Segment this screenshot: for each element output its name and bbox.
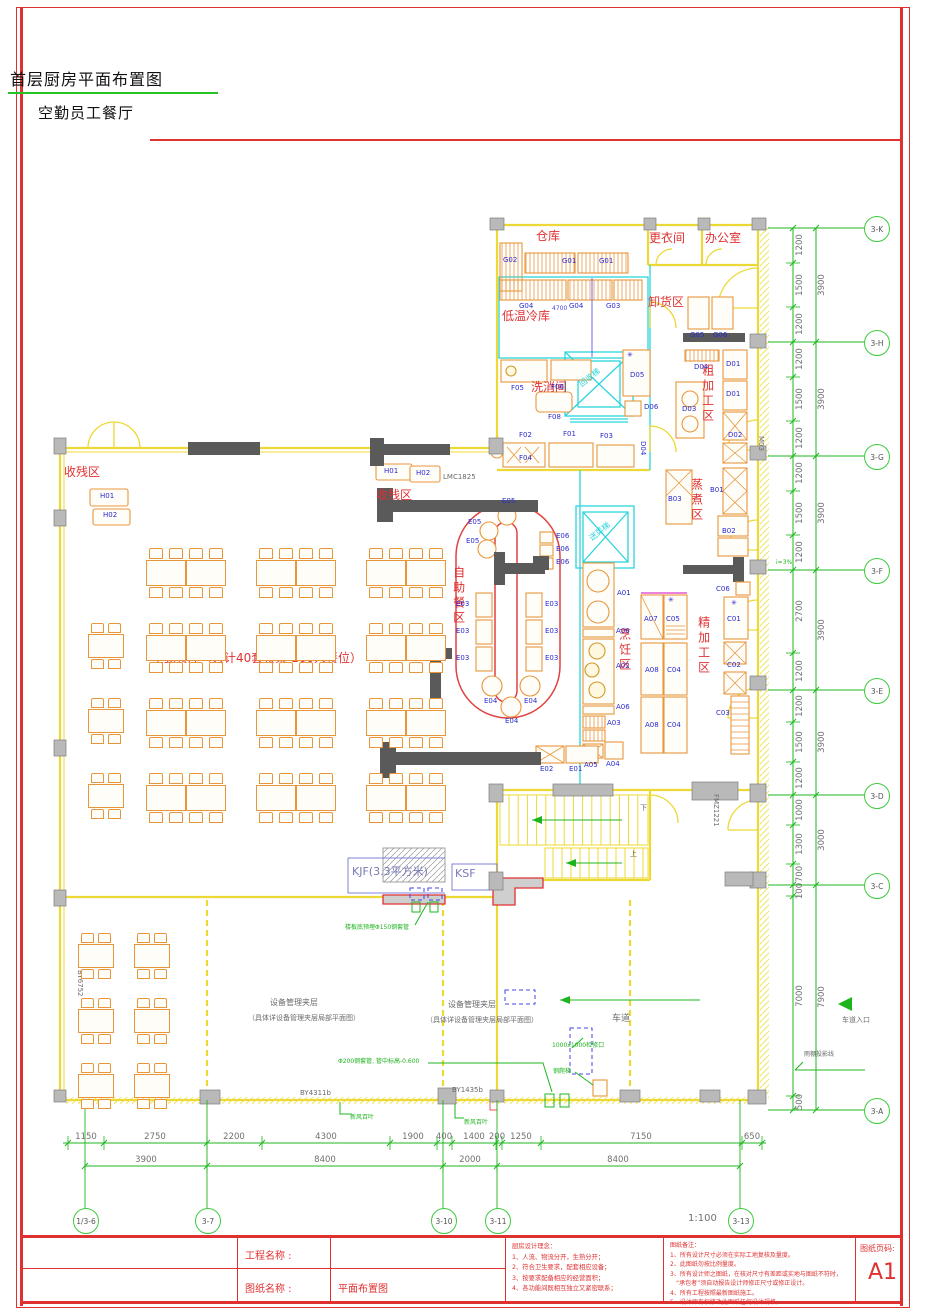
dining-chair — [189, 623, 203, 634]
dining-chair — [389, 737, 403, 748]
dining-chair — [98, 998, 111, 1008]
dining-chair — [209, 812, 223, 823]
dining-chair — [189, 587, 203, 598]
design-philosophy-title: 厨房设计理念： — [512, 1242, 660, 1253]
dining-chair — [409, 587, 423, 598]
dining-chair — [137, 933, 150, 943]
annotation-text: 新风百叶 — [350, 1115, 374, 1121]
dim-text-bottom: 650 — [744, 1133, 760, 1142]
dining-chair — [81, 1099, 94, 1109]
dim-text-bottom: 200 — [489, 1133, 505, 1142]
dim-text-bottom: 4300 — [315, 1133, 337, 1142]
dining-chair — [189, 662, 203, 673]
dining-chair — [409, 737, 423, 748]
dining-table — [406, 635, 446, 661]
dim-text-right: 700 — [796, 866, 805, 882]
dim-text-right: 1200 — [796, 348, 805, 370]
notes-line: 2、此图纸勿按比例量度。 — [670, 1260, 852, 1270]
dim-text-right-total: 3900 — [818, 274, 827, 296]
equipment-code: E03 — [456, 628, 469, 635]
equipment-code: F05 — [511, 385, 524, 392]
equipment-code: D06 — [644, 404, 658, 411]
scale-note: 1:100 — [688, 1214, 717, 1224]
dining-chair — [169, 812, 183, 823]
dining-chair — [98, 969, 111, 979]
dining-chair — [137, 1063, 150, 1073]
annotation-text: BY1435b — [452, 1087, 483, 1094]
dining-chair — [299, 773, 313, 784]
dining-chair — [149, 737, 163, 748]
dining-chair — [319, 587, 333, 598]
dim-text-right: 1200 — [796, 541, 805, 563]
zone-label: 收残区 — [64, 466, 100, 479]
annotation-text: （具体详设备管理夹层局部平面图） — [248, 1015, 360, 1022]
dining-table — [406, 785, 446, 811]
dining-chair — [209, 587, 223, 598]
dining-chair — [81, 1063, 94, 1073]
dim-text-right: 1300 — [796, 833, 805, 855]
dining-table — [256, 710, 296, 736]
dining-table — [146, 635, 186, 661]
dim-text-right-total: 3900 — [818, 619, 827, 641]
dining-table — [256, 785, 296, 811]
dining-chair — [189, 548, 203, 559]
dining-chair — [209, 737, 223, 748]
dining-chair — [369, 662, 383, 673]
dining-chair — [279, 623, 293, 634]
dining-chair — [259, 587, 273, 598]
dining-chair — [429, 662, 443, 673]
plan-overlay: 仓库更衣间办公室卸货区低温冷库洗消间收残区收残区自助餐区烹饪区蒸煮区精加工区粗加… — [0, 0, 930, 1315]
dining-table — [366, 785, 406, 811]
annotation-text: 送菜梯 — [588, 521, 612, 542]
equipment-code: A03 — [607, 720, 621, 727]
dining-chair — [259, 623, 273, 634]
dining-table — [146, 785, 186, 811]
equipment-code: G01 — [562, 258, 576, 265]
equipment-code: C04 — [667, 667, 681, 674]
equipment-code: E05 — [466, 538, 479, 545]
equipment-code: A05 — [584, 762, 598, 769]
dim-text-right: 1200 — [796, 462, 805, 484]
dining-table — [296, 785, 336, 811]
dining-chair — [98, 1099, 111, 1109]
equipment-code: E04 — [505, 718, 518, 725]
equipment-code: E01 — [569, 766, 582, 773]
notes-line: 5、设计师有权修改此图纸任何设计规格。 — [670, 1298, 852, 1308]
grid-bubble-1/3-6: 1/3-6 — [73, 1208, 99, 1234]
equipment-code: C03 — [716, 710, 730, 717]
dining-chair — [429, 623, 443, 634]
drawing-sheet: 首层厨房平面布置图 空勤员工餐厅 — [0, 0, 930, 1315]
philosophy-line: 4、各功能间既相互独立又紧密联系； — [512, 1284, 660, 1295]
dining-chair — [409, 623, 423, 634]
notes-line: “承包者”须自动报告设计师修正尺寸或修正设计。 — [670, 1279, 852, 1289]
grid-bubble-3-H: 3-H — [864, 330, 890, 356]
dining-chair — [108, 698, 121, 708]
dining-table — [134, 944, 170, 968]
dining-chair — [81, 1034, 94, 1044]
equipment-code: E03 — [456, 601, 469, 608]
grid-bubble-3-11: 3-11 — [485, 1208, 511, 1234]
dining-chair — [319, 548, 333, 559]
dining-chair — [91, 698, 104, 708]
dining-chair — [279, 548, 293, 559]
notes-line: 3、所有设计师之图纸，在核对尺寸有差距或实地与图纸不符时， — [670, 1270, 852, 1280]
dim-text-right: 1500 — [796, 388, 805, 410]
equipment-code: C01 — [727, 616, 741, 623]
equipment-code: G01 — [599, 258, 613, 265]
dim-text-right: 7000 — [796, 985, 805, 1007]
equipment-code: A08 — [645, 667, 659, 674]
notes-line: 4、所有工程按照最新图纸施工。 — [670, 1289, 852, 1299]
dining-chair — [389, 812, 403, 823]
annotation-text: 钢爬梯 — [553, 1069, 571, 1075]
equipment-code: A06 — [616, 704, 630, 711]
dim-text-right-total: 3900 — [818, 731, 827, 753]
equipment-code: G06 — [713, 332, 727, 339]
annotation-text: i=3% — [776, 560, 792, 566]
dining-chair — [91, 773, 104, 783]
dining-table — [256, 560, 296, 586]
grid-bubble-3-D: 3-D — [864, 783, 890, 809]
zone-label: 收残区 — [376, 489, 412, 502]
annotation-text: KSF — [455, 868, 476, 879]
zone-label: 卸货区 — [648, 296, 684, 309]
dining-chair — [209, 773, 223, 784]
equipment-code: E03 — [545, 655, 558, 662]
dining-chair — [319, 662, 333, 673]
dining-chair — [169, 698, 183, 709]
annotation-text: 设备管理夹层 — [448, 1001, 496, 1009]
grid-bubble-3-10: 3-10 — [431, 1208, 457, 1234]
dining-chair — [149, 548, 163, 559]
dining-chair — [259, 662, 273, 673]
dining-chair — [169, 548, 183, 559]
dining-table — [186, 560, 226, 586]
grid-bubble-3-K: 3-K — [864, 216, 890, 242]
dining-table — [366, 710, 406, 736]
annotation-text: ✳ — [627, 352, 633, 359]
dim-text-right: 100 — [796, 883, 805, 899]
dining-chair — [149, 698, 163, 709]
dining-chair — [429, 587, 443, 598]
dining-chair — [149, 773, 163, 784]
equipment-code: E02 — [540, 766, 553, 773]
dining-chair — [409, 548, 423, 559]
equipment-code: E04 — [524, 698, 537, 705]
dim-text-right: 1500 — [796, 502, 805, 524]
annotation-text: 车道 — [612, 1015, 630, 1024]
dining-chair — [137, 1034, 150, 1044]
dining-table — [146, 710, 186, 736]
dining-chair — [299, 623, 313, 634]
dining-chair — [409, 662, 423, 673]
zone-label: 办公室 — [705, 232, 741, 245]
annotation-text: 楼板底预埋Φ150钢套管 — [345, 925, 409, 931]
equipment-code: G04 — [519, 303, 533, 310]
dining-chair — [259, 548, 273, 559]
drawing-name-label: 图纸名称 : — [245, 1280, 292, 1295]
drawing-notes: 图纸备注： 1、所有设计尺寸必须在实际工地复核及量度。2、此图纸勿按比例量度。3… — [670, 1241, 852, 1308]
dining-table — [186, 710, 226, 736]
dining-chair — [319, 623, 333, 634]
annotation-text: 4700 — [552, 306, 567, 312]
dining-chair — [81, 969, 94, 979]
dining-chair — [91, 659, 104, 669]
dining-table — [366, 635, 406, 661]
equipment-code: D01 — [726, 361, 740, 368]
dining-chair — [209, 623, 223, 634]
grid-bubble-3-A: 3-A — [864, 1098, 890, 1124]
equipment-code: H02 — [416, 470, 430, 477]
equipment-code: E06 — [556, 559, 569, 566]
dining-chair — [108, 773, 121, 783]
dining-chair — [369, 737, 383, 748]
equipment-code: A02 — [616, 663, 630, 670]
dining-chair — [389, 548, 403, 559]
dining-table — [186, 635, 226, 661]
dining-table — [88, 784, 124, 808]
dining-chair — [169, 662, 183, 673]
annotation-text: 1000x1000检修口 — [552, 1043, 604, 1049]
equipment-code: C05 — [666, 616, 680, 623]
dim-text-right: 1200 — [796, 427, 805, 449]
dining-table — [256, 635, 296, 661]
annotation-text: 回收梯 — [578, 367, 602, 388]
dining-chair — [389, 773, 403, 784]
dining-chair — [389, 587, 403, 598]
equipment-code: C02 — [727, 662, 741, 669]
dining-chair — [189, 698, 203, 709]
equipment-code: F03 — [600, 433, 613, 440]
dining-chair — [154, 998, 167, 1008]
dining-chair — [137, 969, 150, 979]
dim-text-bottom: 1250 — [510, 1133, 532, 1142]
project-name-label: 工程名称 : — [245, 1247, 292, 1262]
dining-chair — [279, 587, 293, 598]
equipment-code: H01 — [100, 493, 114, 500]
equipment-code: C04 — [667, 722, 681, 729]
dining-chair — [149, 662, 163, 673]
dining-chair — [389, 662, 403, 673]
dining-chair — [429, 548, 443, 559]
annotation-text: Φ200钢套管, 管中标高-0.600 — [338, 1059, 419, 1065]
equipment-code: E06 — [556, 533, 569, 540]
equipment-code: E03 — [456, 655, 469, 662]
dining-chair — [409, 698, 423, 709]
zone-label: 更衣间 — [649, 232, 685, 245]
equipment-code: E05 — [502, 498, 515, 505]
dining-chair — [169, 737, 183, 748]
dining-chair — [189, 812, 203, 823]
dining-table — [134, 1009, 170, 1033]
annotation-text: M03 — [757, 436, 764, 451]
dining-chair — [154, 1063, 167, 1073]
dining-chair — [91, 734, 104, 744]
equipment-code: D03 — [682, 406, 696, 413]
dim-text-right-total: 3900 — [818, 502, 827, 524]
annotation-text: 设备管理夹层 — [270, 999, 318, 1007]
equipment-code: B01 — [710, 487, 724, 494]
dining-chair — [299, 662, 313, 673]
philosophy-line: 1、人流、物流分开，生熟分开； — [512, 1253, 660, 1264]
dining-chair — [279, 737, 293, 748]
zone-label: 自助餐区 — [452, 566, 465, 626]
dim-text-bottom: 2750 — [144, 1133, 166, 1142]
grid-bubble-3-7: 3-7 — [195, 1208, 221, 1234]
dining-table — [296, 560, 336, 586]
dining-chair — [209, 548, 223, 559]
dining-table — [78, 944, 114, 968]
dining-chair — [209, 698, 223, 709]
dining-chair — [369, 812, 383, 823]
equipment-code: C06 — [716, 586, 730, 593]
dim-text-bottom: 1400 — [463, 1133, 485, 1142]
equipment-code: A04 — [606, 761, 620, 768]
equipment-code: D02 — [728, 432, 742, 439]
zone-label: 蒸煮区 — [690, 478, 703, 523]
dim-text-right: 1200 — [796, 695, 805, 717]
annotation-text: 车道入口 — [842, 1017, 870, 1024]
dining-table — [296, 710, 336, 736]
dining-chair — [259, 812, 273, 823]
equipment-code: F08 — [548, 414, 561, 421]
equipment-code: E06 — [556, 546, 569, 553]
equipment-code: A01 — [617, 590, 631, 597]
equipment-code: F02 — [519, 432, 532, 439]
dim-text-right: 1200 — [796, 767, 805, 789]
dining-chair — [279, 662, 293, 673]
equipment-code: F04 — [519, 455, 532, 462]
dining-table — [88, 634, 124, 658]
dining-chair — [369, 587, 383, 598]
dim-text-right: 1200 — [796, 660, 805, 682]
equipment-code: D05 — [630, 372, 644, 379]
dining-chair — [319, 698, 333, 709]
dining-chair — [259, 737, 273, 748]
equipment-code: A07 — [644, 616, 658, 623]
dining-chair — [108, 623, 121, 633]
dining-chair — [154, 1099, 167, 1109]
dining-chair — [299, 587, 313, 598]
dining-chair — [108, 809, 121, 819]
equipment-code: E05 — [468, 519, 481, 526]
dim-text-right: 2700 — [796, 600, 805, 622]
dining-table — [78, 1009, 114, 1033]
zone-label: 低温冷库 — [502, 310, 550, 323]
equipment-code: E03 — [545, 601, 558, 608]
dining-table — [406, 710, 446, 736]
equipment-code: B03 — [668, 496, 682, 503]
annotation-text: BY4311b — [300, 1090, 331, 1097]
grid-bubble-3-13: 3-13 — [728, 1208, 754, 1234]
dim-text-right: 1000 — [796, 799, 805, 821]
dining-table — [78, 1074, 114, 1098]
dining-chair — [319, 737, 333, 748]
dim-text-bottom-total: 8400 — [314, 1156, 336, 1165]
dim-text-bottom: 7150 — [630, 1133, 652, 1142]
dining-chair — [91, 623, 104, 633]
grid-bubble-3-G: 3-G — [864, 444, 890, 470]
equipment-code: G02 — [503, 257, 517, 264]
dining-chair — [299, 698, 313, 709]
dining-chair — [319, 812, 333, 823]
annotation-text: ✳ — [668, 597, 674, 604]
dining-chair — [149, 587, 163, 598]
dining-chair — [409, 773, 423, 784]
dining-chair — [429, 698, 443, 709]
dim-text-right: 1500 — [796, 731, 805, 753]
annotation-text: 新风百叶 — [464, 1120, 488, 1126]
dining-chair — [429, 737, 443, 748]
dining-chair — [169, 587, 183, 598]
dim-text-bottom-total: 2000 — [459, 1156, 481, 1165]
dining-chair — [299, 812, 313, 823]
grid-bubble-3-C: 3-C — [864, 873, 890, 899]
dining-chair — [209, 662, 223, 673]
dining-chair — [108, 659, 121, 669]
dining-table — [186, 785, 226, 811]
drawing-notes-title: 图纸备注： — [670, 1241, 852, 1251]
dim-text-right-total: 7900 — [818, 986, 827, 1008]
grid-bubble-3-E: 3-E — [864, 678, 890, 704]
notes-line: 1、所有设计尺寸必须在实际工地复核及量度。 — [670, 1251, 852, 1261]
dining-table — [134, 1074, 170, 1098]
dining-chair — [259, 773, 273, 784]
dining-chair — [369, 548, 383, 559]
annotation-text: KJF(3.3平方米) — [352, 866, 428, 877]
philosophy-line: 3、按要求配备相应的经营面积； — [512, 1274, 660, 1285]
drawing-name-value: 平面布置图 — [338, 1280, 388, 1295]
equipment-code: G04 — [569, 303, 583, 310]
dining-chair — [154, 933, 167, 943]
dim-text-right: 1500 — [796, 274, 805, 296]
zone-label: 精加工区 — [697, 616, 710, 676]
dining-chair — [169, 773, 183, 784]
dim-text-right: 1200 — [796, 234, 805, 256]
dining-chair — [279, 698, 293, 709]
equipment-code: F06 — [551, 384, 564, 391]
dining-chair — [137, 1099, 150, 1109]
dining-chair — [409, 812, 423, 823]
equipment-code: E04 — [484, 698, 497, 705]
dining-chair — [154, 1034, 167, 1044]
dining-chair — [98, 933, 111, 943]
equipment-code: D04 — [639, 441, 646, 455]
equipment-code: A08 — [645, 722, 659, 729]
dining-chair — [169, 623, 183, 634]
zone-label: 仓库 — [536, 230, 560, 243]
dining-chair — [389, 623, 403, 634]
annotation-text: ✳ — [731, 600, 737, 607]
equipment-code: B02 — [722, 528, 736, 535]
equipment-code: H01 — [384, 468, 398, 475]
dining-chair — [137, 998, 150, 1008]
dim-text-right-total: 3000 — [818, 829, 827, 851]
dining-chair — [279, 812, 293, 823]
annotation-text: LMC1825 — [443, 474, 476, 481]
annotation-text: 下 — [640, 805, 647, 812]
dining-chair — [319, 773, 333, 784]
dim-text-bottom: 1900 — [402, 1133, 424, 1142]
equipment-code: H02 — [103, 512, 117, 519]
dining-chair — [389, 698, 403, 709]
dim-text-right: 1200 — [796, 313, 805, 335]
dining-chair — [81, 998, 94, 1008]
dim-text-bottom-total: 8400 — [607, 1156, 629, 1165]
grid-bubble-3-F: 3-F — [864, 558, 890, 584]
